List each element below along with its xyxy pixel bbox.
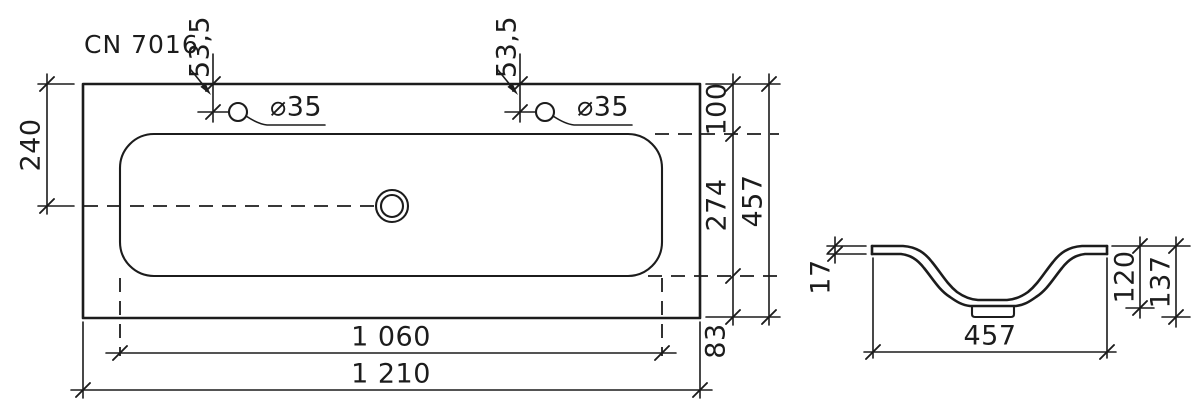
dim-text-100: 100 (702, 82, 733, 135)
dim-rim-thickness: 17 (806, 237, 867, 295)
dim-faucet-offset-left: 53,5 (185, 16, 230, 122)
section-profile (872, 246, 1107, 317)
dim-text-53-5-left: 53,5 (185, 16, 216, 78)
dim-section-heights: 120 137 (1110, 237, 1191, 327)
dim-text-120: 120 (1110, 250, 1141, 303)
dim-edge-to-centerline: 240 (16, 74, 75, 214)
profile-outer-line (872, 254, 1107, 306)
dim-text-240: 240 (16, 118, 47, 171)
drain-inner-circle (381, 195, 403, 217)
dim-text-274: 274 (702, 178, 733, 231)
dim-text-83: 83 (701, 323, 732, 358)
technical-drawing-canvas: CN 7016 240 53,5 (0, 0, 1200, 413)
dim-section-width: 457 (864, 258, 1116, 359)
section-view: 17 120 137 457 (806, 237, 1191, 359)
label-hole-diameter-left: ⌀35 (246, 92, 325, 126)
faucet-hole-right (536, 103, 554, 121)
plan-view: CN 7016 240 53,5 (16, 16, 781, 398)
drain-flange (972, 307, 1014, 317)
dim-bottom-widths: 1 060 1 210 (71, 322, 712, 399)
dim-right-columns: 100 274 457 83 (701, 74, 781, 359)
label-hole-diameter-right: ⌀35 (553, 92, 632, 126)
dim-text-53-5-right: 53,5 (492, 16, 523, 78)
dim-line (827, 237, 866, 263)
dim-text-457-depth: 457 (738, 174, 769, 227)
dim-text-1210: 1 210 (351, 359, 431, 390)
dim-faucet-offset-right: 53,5 (492, 16, 537, 122)
dim-text-d35-left: ⌀35 (270, 92, 322, 123)
model-label: CN 7016 (84, 30, 199, 59)
dim-text-457-width: 457 (963, 321, 1016, 352)
dim-text-1060: 1 060 (351, 322, 431, 353)
dim-text-d35-right: ⌀35 (577, 92, 629, 123)
drain-hole (376, 190, 408, 222)
faucet-hole-left (229, 103, 247, 121)
dim-text-17: 17 (806, 259, 837, 294)
basin-outline (120, 134, 662, 276)
dim-text-137: 137 (1146, 255, 1177, 308)
